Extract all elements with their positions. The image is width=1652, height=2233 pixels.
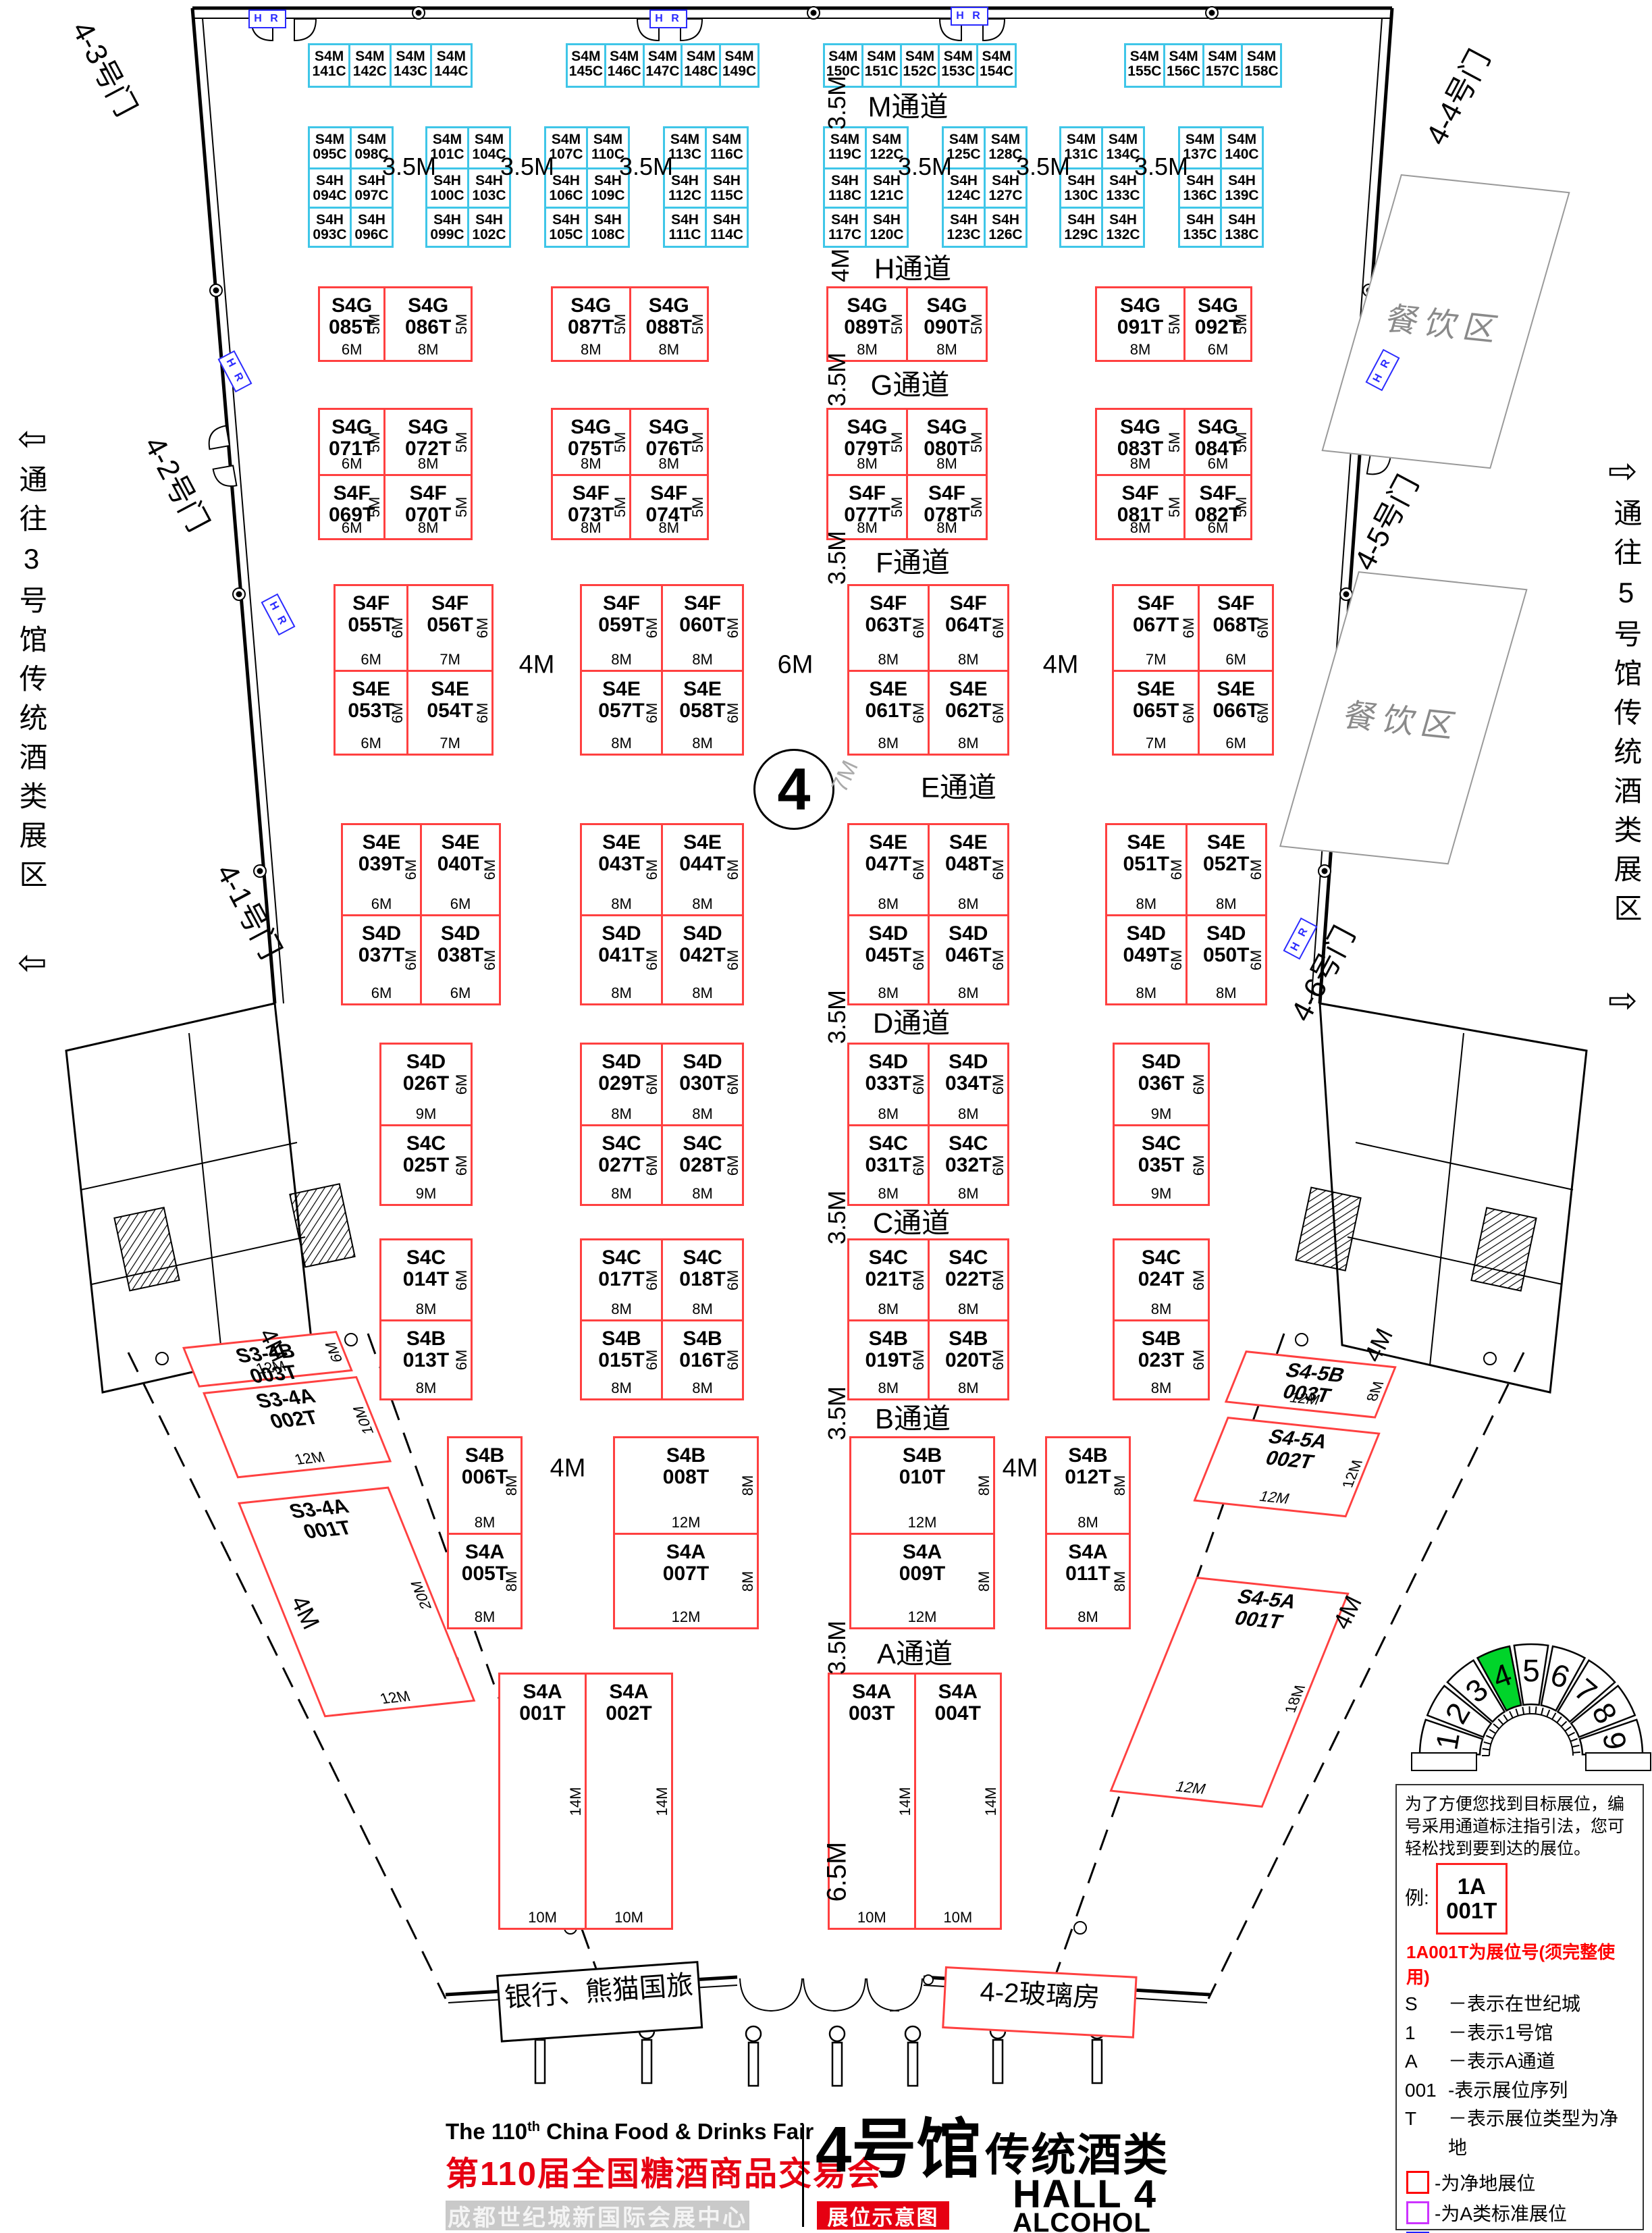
booth-width-label: 8M xyxy=(381,1301,471,1318)
booth-width-label: 8M xyxy=(553,455,629,473)
booth-cell[interactable]: S4M154C xyxy=(976,45,1015,86)
booth-cell[interactable]: S4H138C xyxy=(1220,209,1262,246)
booth-cell[interactable]: S4E047T6M8M xyxy=(849,825,928,914)
booth-cell[interactable]: S4E048T6M8M xyxy=(928,825,1008,914)
booth-cell[interactable]: S4G085T5M6M xyxy=(320,288,383,360)
booth-cell[interactable]: S4H117C xyxy=(825,209,865,246)
booth-depth-label: 6M xyxy=(990,702,1007,723)
floor-label: 3.5M xyxy=(1016,153,1070,181)
booth-cell[interactable]: S4C027T6M8M xyxy=(582,1126,661,1204)
booth-cell[interactable]: S4M116C xyxy=(705,128,747,167)
booth-cell[interactable]: S4D046T6M8M xyxy=(928,916,1008,1003)
booth-cell[interactable]: S4A007T8M12M xyxy=(615,1535,757,1627)
booth-cell[interactable]: S4F055T6M6M xyxy=(336,586,406,670)
booth-cell[interactable]: S4M143C xyxy=(390,45,430,86)
floor-plan-canvas: 4 ⇦ 通往3号馆传统酒类展区 ⇦ ⇨ 通往5号馆传统酒类展区 ⇨ 123456… xyxy=(0,0,1652,2233)
booth-id: S4H139C xyxy=(1222,169,1262,204)
booth-width-label: 7M xyxy=(1114,651,1198,668)
legend-swatch-row: -为B类标准展位 xyxy=(1405,2230,1636,2233)
booth-cell[interactable]: S4M142C xyxy=(348,45,389,86)
booth-id: S4B008T xyxy=(615,1438,757,1488)
booth-block: S4G087T5M8MS4G088T5M8M xyxy=(551,286,709,362)
booth-depth-label: 14M xyxy=(567,1787,585,1816)
booth-cell[interactable]: S4H105C xyxy=(546,209,586,246)
booth-cell[interactable]: S4M095C xyxy=(310,128,350,167)
booth-cell[interactable]: S4E061T6M8M xyxy=(849,672,928,754)
booth-depth-label: 6M xyxy=(1168,949,1185,970)
booth-cell[interactable]: S4G086T5M8M xyxy=(383,288,471,360)
booth-depth-label: 6M xyxy=(910,1269,928,1290)
booth-cell[interactable]: S4D036T6M9M xyxy=(1115,1045,1208,1124)
booth-block: S4F055T6M6MS4F056T6M7MS4E053T6M6MS4E054T… xyxy=(334,584,494,756)
booth-width-label: 8M xyxy=(930,984,1008,1002)
booth-width-label: 8M xyxy=(663,895,742,913)
booth-cell[interactable]: S4G084T5M6M xyxy=(1183,410,1250,474)
booth-depth-label: 5M xyxy=(968,431,986,452)
booth-cell[interactable]: S4C014T6M8M xyxy=(381,1240,471,1319)
booth-cell[interactable]: S4B020T6M8M xyxy=(928,1321,1008,1398)
booth-id: S4H093C xyxy=(310,209,350,243)
booth-cell[interactable]: S4E039T6M6M xyxy=(343,825,420,914)
booth-depth-label: 6M xyxy=(453,1155,471,1176)
booth-cell[interactable]: S4E054T6M7M xyxy=(406,672,491,754)
booth-cell[interactable]: S4M149C xyxy=(719,45,757,86)
booth-width-label: 8M xyxy=(449,1608,521,1626)
booth-block: S4M150CS4M151CS4M152CS4M153CS4M154C xyxy=(823,43,1017,88)
booth-cell[interactable]: S4C025T6M9M xyxy=(381,1126,471,1204)
booth-cell[interactable]: S4M141C xyxy=(310,45,348,86)
booth-cell[interactable]: S4G080T5M8M xyxy=(906,410,986,474)
booth-cell[interactable]: S4H099C xyxy=(427,209,467,246)
booth-width-label: 8M xyxy=(1107,984,1185,1002)
booth-cell[interactable]: S4G075T5M8M xyxy=(553,410,629,474)
booth-cell[interactable]: S4M156C xyxy=(1163,45,1202,86)
booth-width-label: 12M xyxy=(615,1514,757,1531)
booth-depth-label: 6M xyxy=(1190,1269,1208,1290)
floor-label: F通道 xyxy=(876,540,950,581)
booth-id: S4H120C xyxy=(867,209,907,243)
booth-depth-label: 6M xyxy=(910,949,928,970)
booth-width-label: 8M xyxy=(663,1301,742,1318)
booth-cell[interactable]: S4F068T6M6M xyxy=(1198,586,1272,670)
booth-cell[interactable]: S4F056T6M7M xyxy=(406,586,491,670)
booth-depth-label: 6M xyxy=(990,1350,1007,1371)
booth-cell[interactable]: S4M147C xyxy=(643,45,681,86)
booth-block: S4E047T6M8MS4E048T6M8MS4D045T6M8MS4D046T… xyxy=(847,823,1009,1005)
booth-cell[interactable]: S4M140C xyxy=(1220,128,1262,167)
booth-cell[interactable]: S4F069T5M6M xyxy=(320,476,383,538)
booth-cell[interactable]: S4H094C xyxy=(310,169,350,207)
booth-cell[interactable]: S4C017T6M8M xyxy=(582,1240,661,1319)
booth-depth-label: 5M xyxy=(612,431,629,452)
booth-block: S4E039T6M6MS4E040T6M6MS4D037T6M6MS4D038T… xyxy=(341,823,501,1005)
booth-depth-label: 6M xyxy=(643,860,661,881)
booth-cell[interactable]: S4H139C xyxy=(1220,169,1262,207)
floor-label: 4M xyxy=(826,248,855,282)
booth-depth-label: 6M xyxy=(474,702,491,723)
booth-cell[interactable]: S4E040T6M6M xyxy=(420,825,499,914)
booth-cell[interactable]: S4D041T6M8M xyxy=(582,916,661,1003)
booth-cell[interactable]: S4D050T6M8M xyxy=(1185,916,1266,1003)
booth-cell[interactable]: S4B008T8M12M xyxy=(615,1438,757,1533)
booth-block: S4M125CS4M128CS4H124CS4H127CS4H123CS4H12… xyxy=(942,126,1028,248)
booth-cell[interactable]: S4M151C xyxy=(861,45,900,86)
booth-depth-label: 6M xyxy=(474,618,491,639)
booth-width-label: 8M xyxy=(631,519,708,537)
booth-depth-label: 5M xyxy=(366,431,383,452)
booth-id: S4M151C xyxy=(863,45,900,80)
legend-box: 为了方便您找到目标展位，编号采用通道标注指引法，您可轻松找到要到达的展位。 例:… xyxy=(1395,1784,1644,2230)
booth-cell[interactable]: S4M119C xyxy=(825,128,865,167)
booth-width-label: 8M xyxy=(849,984,928,1002)
booth-cell[interactable]: S3-4A002T10M12M xyxy=(203,1376,392,1478)
booth-cell[interactable]: S4D030T6M8M xyxy=(661,1045,742,1124)
booth-depth-label: 5M xyxy=(453,431,471,452)
booth-block: S4M119CS4M122CS4H118CS4H121CS4H117CS4H12… xyxy=(823,126,909,248)
booth-cell[interactable]: S4G071T5M6M xyxy=(320,410,383,474)
booth-cell[interactable]: S4M155C xyxy=(1126,45,1163,86)
booth-cell[interactable]: S4H102C xyxy=(467,209,509,246)
booth-width-label: 6M xyxy=(320,519,383,537)
booth-cell[interactable]: S4G089T5M8M xyxy=(828,288,906,360)
booth-depth-label: 5M xyxy=(1233,431,1250,452)
booth-cell[interactable]: S4F067T6M7M xyxy=(1114,586,1198,670)
booth-cell[interactable]: S4F064T6M8M xyxy=(928,586,1008,670)
booth-cell[interactable]: S4F081T5M8M xyxy=(1097,476,1183,538)
booth-id: S4A004T xyxy=(916,1675,1001,1725)
booth-cell[interactable]: S4M158C xyxy=(1241,45,1280,86)
booth-cell[interactable]: S4G092T5M6M xyxy=(1183,288,1250,360)
booth-cell[interactable]: S4G087T5M8M xyxy=(553,288,629,360)
booth-cell[interactable]: S4M153C xyxy=(938,45,976,86)
booth-width-label: 8M xyxy=(1115,1301,1208,1318)
booth-cell[interactable]: S4C032T6M8M xyxy=(928,1126,1008,1204)
booth-depth-label: 6M xyxy=(1248,949,1265,970)
booth-block: S4G083T5M8MS4G084T5M6MS4F081T5M8MS4F082T… xyxy=(1095,408,1252,540)
booth-cell[interactable]: S4C018T6M8M xyxy=(661,1240,742,1319)
booth-cell[interactable]: S4A009T8M12M xyxy=(851,1535,993,1627)
booth-id: S4M146C xyxy=(606,45,643,80)
booth-cell[interactable]: S4E057T6M8M xyxy=(582,672,661,754)
booth-width-label: 8M xyxy=(663,1185,742,1203)
booth-width-label: 8M xyxy=(1097,519,1183,537)
booth-width-label: 6M xyxy=(1185,519,1250,537)
booth-cell[interactable]: S4H123C xyxy=(944,209,984,246)
booth-depth-label: 6M xyxy=(402,949,420,970)
booth-depth-label: 6M xyxy=(990,618,1007,639)
legend-code-line: A－表示A通道 xyxy=(1405,2047,1636,2076)
title-block: The 110th China Food & Drinks Fair 第110届… xyxy=(446,2119,1242,2230)
booth-width-label: 8M xyxy=(582,735,661,752)
booth-cell[interactable]: S4H132C xyxy=(1101,209,1143,246)
booth-cell[interactable]: S4H135C xyxy=(1180,209,1220,246)
booth-id: S4M148C xyxy=(683,45,719,80)
booth-cell[interactable]: S4G088T5M8M xyxy=(629,288,708,360)
booth-cell[interactable]: S4H114C xyxy=(705,209,747,246)
booth-width-label: 8M xyxy=(582,651,661,668)
booth-depth-label: 6M xyxy=(1248,860,1265,881)
floor-label: 3.5M xyxy=(898,153,952,181)
booth-cell[interactable]: S4-5A002T12M12M xyxy=(1193,1417,1380,1517)
booth-width-label: 8M xyxy=(930,735,1008,752)
booth-cell[interactable]: S4M152C xyxy=(900,45,938,86)
booth-cell[interactable]: S4M157C xyxy=(1202,45,1242,86)
booth-width-label: 8M xyxy=(582,895,661,913)
hydrant-icon: H R xyxy=(649,9,687,28)
booth-block: S4F063T6M8MS4F064T6M8MS4E061T6M8MS4E062T… xyxy=(847,584,1009,756)
booth-id: S4M152C xyxy=(902,45,938,80)
booth-depth-label: 6M xyxy=(910,702,928,723)
booth-depth-label: 5M xyxy=(689,314,707,335)
booth-cell[interactable]: S4C028T6M8M xyxy=(661,1126,742,1204)
booth-cell[interactable]: S4H111C xyxy=(665,209,705,246)
booth-cell[interactable]: S4M145C xyxy=(568,45,604,86)
booth-cell[interactable]: S4M148C xyxy=(681,45,719,86)
booth-cell[interactable]: S4D042T6M8M xyxy=(661,916,742,1003)
booth-width-label: 12M xyxy=(615,1608,757,1626)
booth-id: S4H118C xyxy=(825,169,865,204)
booth-type-swatch xyxy=(1406,2201,1429,2224)
booth-depth-label: 6M xyxy=(724,1269,742,1290)
booth-depth-label: 6M xyxy=(481,860,499,881)
legend-example-label: 例: xyxy=(1405,1883,1429,1910)
booth-depth-label: 5M xyxy=(689,497,707,518)
floor-label: E通道 xyxy=(921,765,996,806)
booth-cell[interactable]: S4M146C xyxy=(604,45,643,86)
booth-width-label: 8M xyxy=(1188,895,1266,913)
booth-cell[interactable]: S4C035T6M9M xyxy=(1115,1126,1208,1204)
booth-width-label: 8M xyxy=(1097,341,1183,359)
booth-cell[interactable]: S4D049T6M8M xyxy=(1107,916,1185,1003)
booth-cell[interactable]: S4H115C xyxy=(705,169,747,207)
booth-id: S4H138C xyxy=(1222,209,1262,243)
booth-depth-label: 8M xyxy=(503,1571,521,1592)
booth-block: S4C017T6M8MS4C018T6M8MS4B015T6M8MS4B016T… xyxy=(580,1238,744,1400)
booth-cell[interactable]: S4F077T5M8M xyxy=(828,476,906,538)
booth-depth-label: 8M xyxy=(503,1475,521,1496)
booth-cell[interactable]: S4B006T8M8M xyxy=(449,1438,521,1533)
booth-cell[interactable]: S4C021T6M8M xyxy=(849,1240,928,1319)
booth-cell[interactable]: S4H093C xyxy=(310,209,350,246)
booth-cell[interactable]: S4B023T6M8M xyxy=(1115,1321,1208,1398)
booth-block: S4B008T8M12MS4A007T8M12M xyxy=(613,1436,759,1629)
booth-id: S4H123C xyxy=(944,209,984,243)
booth-cell[interactable]: S4G072T5M8M xyxy=(383,410,471,474)
booth-width-label: 8M xyxy=(385,519,471,537)
booth-depth-label: 6M xyxy=(910,860,928,881)
booth-cell[interactable]: S4G083T5M8M xyxy=(1097,410,1183,474)
floor-label: 3.5M xyxy=(823,352,851,406)
svg-text:5: 5 xyxy=(1522,1653,1540,1688)
booth-depth-label: 6M xyxy=(1180,702,1198,723)
booth-depth-label: 6M xyxy=(1190,1350,1208,1371)
booth-cell[interactable]: S4B019T6M8M xyxy=(849,1321,928,1398)
booth-depth-label: 6M xyxy=(724,1350,742,1371)
booth-width-label: 6M xyxy=(336,735,406,752)
booth-cell[interactable]: S4D045T6M8M xyxy=(849,916,928,1003)
booth-depth-label: 6M xyxy=(389,702,406,723)
booth-id: S4M153C xyxy=(940,45,976,80)
booth-depth-label: 5M xyxy=(968,314,986,335)
booth-id: S4M150C xyxy=(825,45,861,80)
booth-cell[interactable]: S4B016T6M8M xyxy=(661,1321,742,1398)
booth-cell[interactable]: S4A001T14M10M xyxy=(500,1675,585,1928)
booth-cell[interactable]: S4F074T5M8M xyxy=(629,476,708,538)
booth-block: S4E051T6M8MS4E052T6M8MS4D049T6M8MS4D050T… xyxy=(1105,823,1267,1005)
booth-cell[interactable]: S4H108C xyxy=(586,209,628,246)
booth-block: S4F067T6M7MS4F068T6M6MS4E065T6M7MS4E066T… xyxy=(1112,584,1274,756)
booth-block: S4M155CS4M156CS4M157CS4M158C xyxy=(1124,43,1282,88)
booth-cell[interactable]: S4H129C xyxy=(1061,209,1101,246)
floor-label: M通道 xyxy=(868,84,949,126)
booth-id: S4M154C xyxy=(978,45,1015,80)
booth-width-label: 8M xyxy=(908,341,986,359)
booth-cell[interactable]: S4B010T8M12M xyxy=(851,1438,993,1533)
booth-width-label: 8M xyxy=(385,455,471,473)
booth-cell[interactable]: S4D033T6M8M xyxy=(849,1045,928,1124)
title-divider xyxy=(802,2124,804,2227)
booth-cell[interactable]: S4E052T6M8M xyxy=(1185,825,1266,914)
floor-label: 4M xyxy=(519,651,555,680)
booth-id: S4M157C xyxy=(1204,45,1242,80)
booth-cell[interactable]: S4F063T6M8M xyxy=(849,586,928,670)
booth-cell[interactable]: S4A002T14M10M xyxy=(585,1675,671,1928)
booth-depth-label: 5M xyxy=(888,431,906,452)
booth-cell[interactable]: S4H126C xyxy=(984,209,1025,246)
booth-depth-label: 6M xyxy=(453,1350,471,1371)
booth-id: S4M095C xyxy=(310,128,350,163)
booth-depth-label: 6M xyxy=(990,1155,1007,1176)
booth-width-label: 6M xyxy=(1185,455,1250,473)
booth-width-label: 8M xyxy=(930,895,1008,913)
booth-cell[interactable]: S4C031T6M8M xyxy=(849,1126,928,1204)
booth-width-label: 8M xyxy=(1097,455,1183,473)
booth-cell[interactable]: S4A011T8M8M xyxy=(1047,1535,1129,1627)
legend-intro: 为了方便您找到目标展位，编号采用通道标注指引法，您可轻松找到要到达的展位。 xyxy=(1405,1793,1636,1860)
legend-swatch-row: -为A类标准展位 xyxy=(1405,2199,1636,2226)
booth-depth-label: 6M xyxy=(643,1269,661,1290)
booth-cell[interactable]: S4E043T6M8M xyxy=(582,825,661,914)
booth-cell[interactable]: S4G091T5M8M xyxy=(1097,288,1183,360)
legend-code-line: 001-表示展位序列 xyxy=(1405,2076,1636,2105)
booth-cell[interactable]: S4F060T6M8M xyxy=(661,586,742,670)
booth-width-label: 8M xyxy=(930,1301,1008,1318)
booth-width-label: 8M xyxy=(553,519,629,537)
booth-width-label: 6M xyxy=(422,895,499,913)
booth-cell[interactable]: S4E065T6M7M xyxy=(1114,672,1198,754)
floor-label: 4M xyxy=(550,1454,586,1483)
booth-depth-label: 5M xyxy=(612,314,629,335)
booth-id: S4B010T xyxy=(851,1438,993,1488)
booth-width-label: 8M xyxy=(582,984,661,1002)
booth-depth-label: 6M xyxy=(724,1074,742,1095)
booth-block: S4G091T5M8MS4G092T5M6M xyxy=(1095,286,1252,362)
floor-label: 3.5M xyxy=(1134,153,1188,181)
plan-badge: 展位示意图 xyxy=(817,2201,949,2230)
booth-cell[interactable]: S4F070T5M8M xyxy=(383,476,471,538)
booth-width-label: 10M xyxy=(830,1909,914,1926)
booth-depth-label: 5M xyxy=(1233,314,1250,335)
booth-cell[interactable]: S4D029T6M8M xyxy=(582,1045,661,1124)
booth-id: S4M158C xyxy=(1243,45,1280,80)
booth-cell[interactable]: S4H118C xyxy=(825,169,865,207)
booth-depth-label: 14M xyxy=(897,1787,914,1816)
booth-cell[interactable]: S4F059T6M8M xyxy=(582,586,661,670)
booth-depth-label: 8M xyxy=(976,1475,993,1496)
booth-block: S4M101CS4M104CS4H100CS4H103CS4H099CS4H10… xyxy=(425,126,511,248)
booth-cell[interactable]: S4E053T6M6M xyxy=(336,672,406,754)
booth-width-label: 6M xyxy=(422,984,499,1002)
bank-area: 银行、熊猫国旅 xyxy=(496,1961,703,2043)
booth-cell[interactable]: S4C022T6M8M xyxy=(928,1240,1008,1319)
booth-depth-label: 6M xyxy=(910,618,928,639)
floor-label: 4M xyxy=(1003,1454,1038,1483)
booth-width-label: 8M xyxy=(663,1105,742,1123)
booth-cell[interactable]: S4D038T6M6M xyxy=(420,916,499,1003)
booth-cell[interactable]: S4B012T8M8M xyxy=(1047,1438,1129,1533)
booth-cell[interactable]: S4E058T6M8M xyxy=(661,672,742,754)
booth-id: S4M147C xyxy=(645,45,681,80)
booth-id: S4H094C xyxy=(310,169,350,204)
booth-depth-label: 5M xyxy=(1166,497,1183,518)
booth-cell[interactable]: S4E051T6M8M xyxy=(1107,825,1185,914)
booth-cell[interactable]: S4E044T6M8M xyxy=(661,825,742,914)
booth-cell[interactable]: S4H120C xyxy=(865,209,907,246)
floor-label: 3.5M xyxy=(619,153,673,181)
booth-cell[interactable]: S4A004T14M10M xyxy=(914,1675,1001,1928)
booth-depth-label: 6M xyxy=(1254,618,1272,639)
booth-depth-label: 14M xyxy=(982,1787,1000,1816)
booth-depth-label: 6M xyxy=(910,1155,928,1176)
booth-cell[interactable]: S4E066T6M6M xyxy=(1198,672,1272,754)
booth-depth-label: 6M xyxy=(1168,860,1185,881)
booth-cell[interactable]: S4H096C xyxy=(350,209,392,246)
floor-label: 3.5M xyxy=(823,990,851,1044)
booth-width-label: 8M xyxy=(828,455,906,473)
booth-id: S4H108C xyxy=(588,209,628,243)
booth-cell[interactable]: S4D037T6M6M xyxy=(343,916,420,1003)
booth-block: S4C024T6M8MS4B023T6M8M xyxy=(1113,1238,1210,1400)
booth-cell[interactable]: S4C024T6M8M xyxy=(1115,1240,1208,1319)
booth-depth-label: 6M xyxy=(453,1074,471,1095)
booth-cell[interactable]: S4F082T5M6M xyxy=(1183,476,1250,538)
booth-block: S4E043T6M8MS4E044T6M8MS4D041T6M8MS4D042T… xyxy=(580,823,744,1005)
booth-width-label: 8M xyxy=(908,519,986,537)
booth-cell[interactable]: S4G090T5M8M xyxy=(906,288,986,360)
booth-cell[interactable]: S4B013T6M8M xyxy=(381,1321,471,1398)
booth-width-label: 9M xyxy=(381,1105,471,1123)
booth-cell[interactable]: S4G079T5M8M xyxy=(828,410,906,474)
booth-id: S4A002T xyxy=(587,1675,671,1725)
floor-label: H通道 xyxy=(874,246,951,288)
booth-width-label: 8M xyxy=(663,651,742,668)
booth-cell[interactable]: S4F073T5M8M xyxy=(553,476,629,538)
booth-cell[interactable]: S4B015T6M8M xyxy=(582,1321,661,1398)
booth-cell[interactable]: S4A005T8M8M xyxy=(449,1535,521,1627)
booth-depth-label: 6M xyxy=(724,1155,742,1176)
booth-cell[interactable]: S4D034T6M8M xyxy=(928,1045,1008,1124)
booth-cell[interactable]: S4M144C xyxy=(430,45,471,86)
booth-id: S4M145C xyxy=(568,45,604,80)
booth-cell[interactable]: S4G076T5M8M xyxy=(629,410,708,474)
booth-depth-label: 5M xyxy=(366,314,383,335)
booth-cell[interactable]: S4F078T5M8M xyxy=(906,476,986,538)
booth-cell[interactable]: S4D026T6M9M xyxy=(381,1045,471,1124)
booth-width-label: 8M xyxy=(631,455,708,473)
booth-width-label: 10M xyxy=(587,1909,671,1926)
booth-width-label: 8M xyxy=(849,895,928,913)
booth-cell[interactable]: S4E062T6M8M xyxy=(928,672,1008,754)
